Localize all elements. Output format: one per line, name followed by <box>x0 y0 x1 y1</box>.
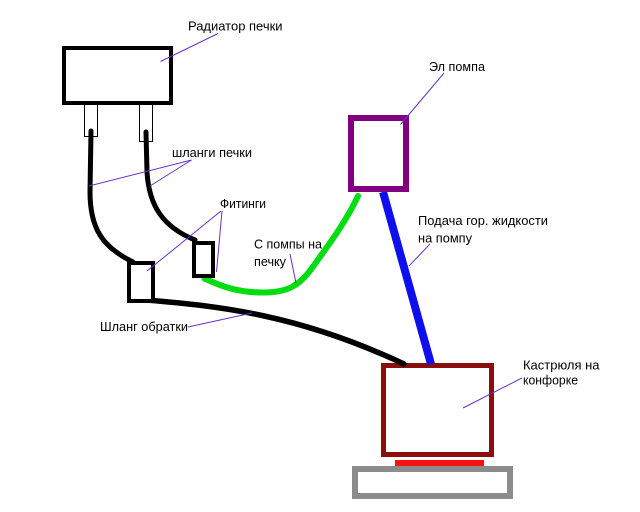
svg-text:С помпы на: С помпы на <box>254 237 323 252</box>
svg-text:шланги печки: шланги печки <box>172 145 252 160</box>
svg-text:печку: печку <box>254 254 286 269</box>
svg-text:Шланг обратки: Шланг обратки <box>100 319 188 334</box>
svg-text:Фитинги: Фитинги <box>220 196 266 211</box>
svg-text:на помпу: на помпу <box>418 231 472 246</box>
svg-text:Подача гор. жидкости: Подача гор. жидкости <box>418 213 548 228</box>
svg-text:Кастрюля на: Кастрюля на <box>523 358 600 373</box>
svg-text:конфорке: конфорке <box>523 373 578 388</box>
svg-text:Радиатор печки: Радиатор печки <box>188 19 283 34</box>
svg-text:Эл помпа: Эл помпа <box>429 59 486 74</box>
